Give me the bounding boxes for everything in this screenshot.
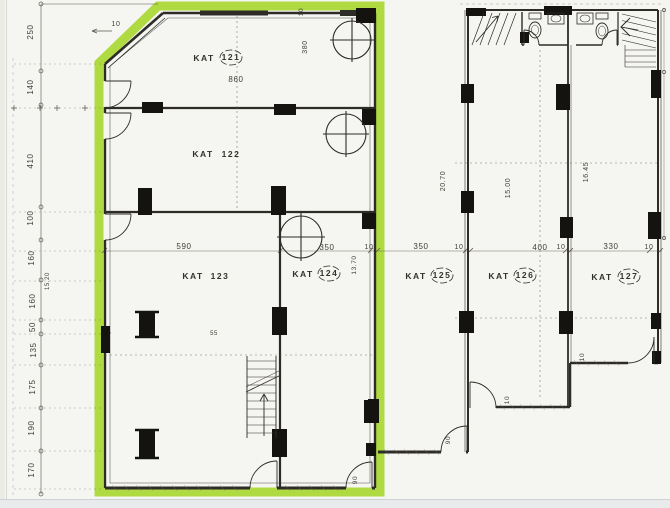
dimension-label: 380 [302,40,309,53]
dimension-label: 90 [352,476,359,484]
room-number-label: 123 [211,271,230,281]
dimension-label: 16.45 [583,162,590,183]
dimension-label: 50 [28,322,37,332]
room-label: KAT [488,271,509,281]
dimension-label: 330 [603,242,618,251]
dimension-label: 250 [26,24,35,39]
dimension-label: 90 [445,436,452,444]
room-label: KAT [192,149,213,159]
dimension-label: 15.00 [505,178,512,199]
dimension-label: 10 [645,244,654,251]
room-label: KAT [405,271,426,281]
scan-edge-left [0,0,5,508]
dimension-label: 10 [455,244,464,251]
dimension-label: 55 [210,331,218,337]
dimension-label: 410 [26,153,35,168]
dimension-label: 160 [27,250,36,265]
room-label: KAT [292,269,313,279]
dimension-label: 160 [28,293,37,308]
dimension-label: 100 [26,210,35,225]
dimension-label: 860 [228,75,243,84]
room-label: KAT [193,53,214,63]
wall-fill [520,32,529,43]
dimension-label: 10 [579,353,586,361]
dimension-label: 13.70 [351,255,358,274]
room-number-label: 124 [320,268,339,278]
dimension-label: 175 [28,379,37,394]
dimension-label: 15.20 [45,272,51,290]
room-label: KAT [182,271,203,281]
dimension-label: 10 [504,396,511,404]
dimension-label: 400 [532,243,547,252]
dimension-label: 10 [557,244,566,251]
room-number-label: 122 [222,149,241,159]
floor-plan-scan: KAT121KAT122KAT123KAT124KAT125KAT126KAT1… [0,0,670,508]
dimension-label: 10 [298,8,305,16]
floor-plan-drawing: KAT121KAT122KAT123KAT124KAT125KAT126KAT1… [0,0,670,508]
dimension-label: 10 [365,244,374,251]
dimension-label: 590 [176,242,191,251]
room-label: KAT [591,272,612,282]
room-number-label: 125 [433,270,452,280]
dimension-label: 190 [27,420,36,435]
dimension-label: 170 [27,462,36,477]
corner-wall-fill [356,8,376,23]
dimension-label: 20.70 [440,171,447,192]
room-number-label: 126 [516,270,535,280]
dimension-label: 10 [112,21,121,28]
room-number-label: 127 [620,271,639,281]
dimension-label: 140 [26,79,35,94]
dimension-label: 135 [29,342,38,357]
dimension-label: 350 [413,242,428,251]
scan-edge-bottom [0,500,670,508]
room-number-label: 121 [222,52,241,62]
dimension-label: 350 [319,243,334,252]
